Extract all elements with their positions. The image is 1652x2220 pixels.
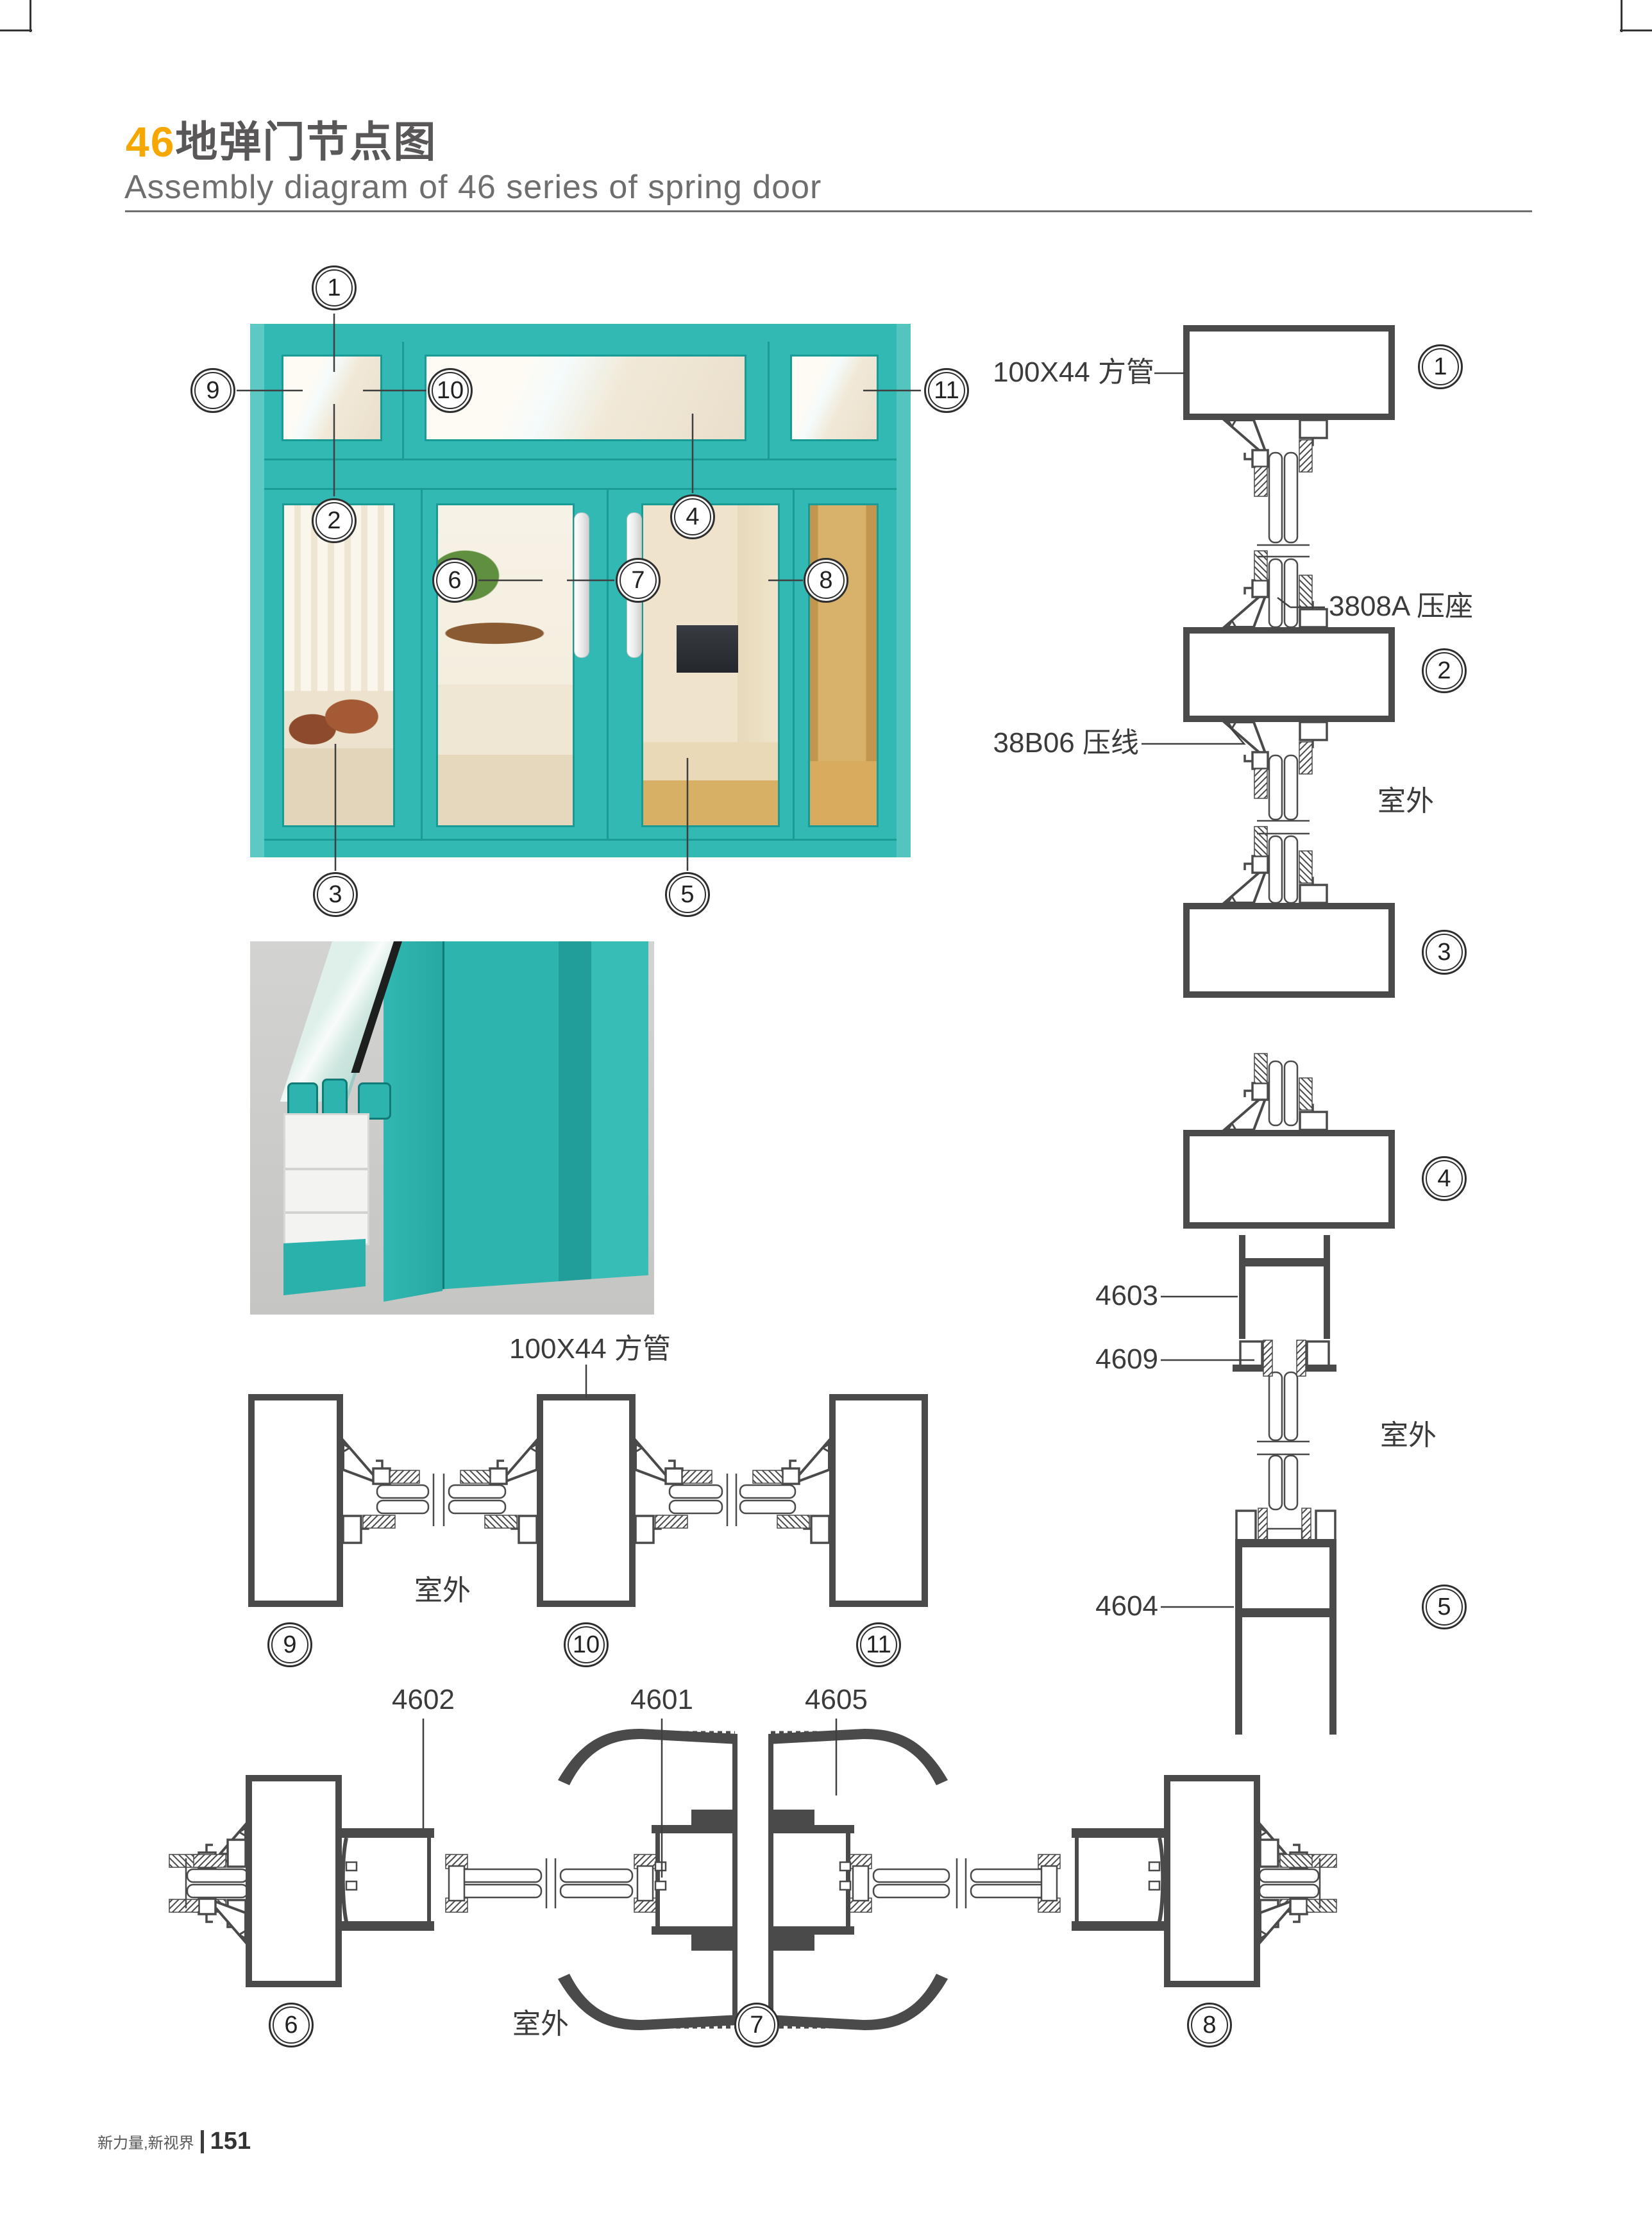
label-tube-bottom: 100X44 方管 xyxy=(509,1333,671,1366)
door-meeting-seam xyxy=(607,489,609,841)
label-4601: 4601 xyxy=(630,1684,693,1717)
label-3808a: 3808A 压座 xyxy=(1329,591,1473,623)
label-4605: 4605 xyxy=(805,1684,868,1717)
render-profile-shelf-2 xyxy=(285,1211,367,1214)
glass-units-vertical xyxy=(1269,453,1297,1509)
window-frame-highlight-right xyxy=(897,324,911,857)
callout-section-5: 5 xyxy=(1422,1585,1467,1629)
callout-number: 4 xyxy=(686,503,699,531)
callout-number: 7 xyxy=(631,567,645,594)
door-pane-leaf-left xyxy=(436,503,575,827)
callout-number: 5 xyxy=(680,881,694,909)
callout-section-7: 7 xyxy=(734,2003,779,2048)
label-4609: 4609 xyxy=(1095,1343,1158,1376)
label-4604: 4604 xyxy=(1095,1590,1158,1623)
label-tube-right: 100X44 方管 xyxy=(993,357,1154,389)
callout-number: 8 xyxy=(819,567,832,594)
callout-number: 2 xyxy=(1437,657,1451,685)
callout-section-1: 1 xyxy=(1418,344,1463,389)
profile-4609 xyxy=(1233,1340,1336,1376)
page-title: 46地弹门节点图 xyxy=(126,108,437,169)
callout-section-10: 10 xyxy=(564,1622,609,1667)
page-subtitle: Assembly diagram of 46 series of spring … xyxy=(124,168,822,206)
callout-number: 3 xyxy=(328,881,342,909)
callout-number: 11 xyxy=(934,377,959,405)
callout-section-3: 3 xyxy=(1422,930,1467,975)
callout-number: 1 xyxy=(327,274,341,302)
transom-mullion-seam-left xyxy=(402,342,404,458)
footer-brand: 新力量,新视界 xyxy=(97,2130,194,2153)
transom-mullion-seam-right xyxy=(768,342,770,458)
label-outdoor-bottom: 室外 xyxy=(512,2008,569,2041)
callout-number: 6 xyxy=(448,567,461,594)
door-pane-sidelite-left xyxy=(282,503,395,827)
callout-window-11: 11 xyxy=(924,368,969,413)
crop-mark-top-right-h xyxy=(1620,29,1652,31)
transom-pane-right xyxy=(790,355,879,441)
label-outdoor-right-upper: 室外 xyxy=(1378,786,1434,818)
callout-window-1: 1 xyxy=(312,265,357,310)
callout-section-6: 6 xyxy=(269,2003,314,2048)
profile-4602-right-mirror xyxy=(1072,1828,1165,1931)
page-footer: 新力量,新视界 151 xyxy=(97,2128,251,2155)
render-glass-pane xyxy=(280,941,400,1102)
bottom-rail-seam xyxy=(264,839,897,841)
callout-number: 11 xyxy=(866,1631,891,1659)
door-pane-sidelite-right xyxy=(808,503,879,827)
profile-4604 xyxy=(1235,1508,1336,1735)
profile-4603 xyxy=(1239,1235,1330,1339)
callout-number: 3 xyxy=(1437,939,1451,966)
page-title-chinese: 地弹门节点图 xyxy=(175,118,437,165)
catalog-page: 46地弹门节点图 Assembly diagram of 46 series o… xyxy=(0,0,1652,2220)
callout-section-4: 4 xyxy=(1422,1156,1467,1201)
profile-3d-render xyxy=(250,941,654,1315)
label-outdoor-right-lower: 室外 xyxy=(1380,1420,1437,1452)
crop-mark-top-left-v xyxy=(29,0,31,32)
callout-number: 4 xyxy=(1437,1165,1451,1193)
crop-mark-top-right-v xyxy=(1621,0,1622,32)
render-profile-box xyxy=(283,1113,369,1245)
callout-window-6: 6 xyxy=(432,558,477,603)
callout-window-9: 9 xyxy=(190,368,235,413)
callout-section-11: 11 xyxy=(856,1622,901,1667)
label-outdoor-mid: 室外 xyxy=(414,1575,471,1608)
glass-units-plan xyxy=(377,1485,795,1513)
door-mullion-seam-right xyxy=(793,489,795,841)
render-frame-slab xyxy=(383,941,442,1302)
glass-units-bottom xyxy=(187,1869,1319,1897)
callout-number: 7 xyxy=(750,2012,763,2039)
label-38b06: 38B06 压线 xyxy=(993,727,1139,760)
header-divider xyxy=(125,210,1532,212)
callout-section-9: 9 xyxy=(267,1622,312,1667)
footer-divider xyxy=(201,2130,204,2153)
profile-4601-leaf xyxy=(558,1729,737,2030)
label-4602: 4602 xyxy=(392,1684,455,1717)
door-mullion-seam-left xyxy=(421,489,423,841)
window-frame-highlight-left xyxy=(250,324,264,857)
callout-section-8: 8 xyxy=(1187,2003,1232,2048)
callout-number: 6 xyxy=(284,2012,298,2039)
callout-window-2: 2 xyxy=(312,498,357,543)
transom-pane-left xyxy=(282,355,382,441)
callout-window-5: 5 xyxy=(665,872,710,917)
callout-window-4: 4 xyxy=(670,494,715,539)
profile-4602-left xyxy=(341,1828,434,1931)
render-door-panel xyxy=(442,941,648,1293)
callout-number: 9 xyxy=(283,1631,296,1659)
callout-window-3: 3 xyxy=(313,872,358,917)
label-4603: 4603 xyxy=(1095,1280,1158,1313)
callout-number: 9 xyxy=(206,377,219,405)
callout-number: 5 xyxy=(1437,1594,1451,1621)
transom-rail-seam xyxy=(264,458,897,460)
render-profile-shelf-1 xyxy=(285,1168,367,1170)
door-rail-seam xyxy=(264,488,897,490)
door-handle-left xyxy=(575,513,589,657)
callout-number: 10 xyxy=(573,1631,600,1659)
callout-number: 10 xyxy=(437,377,464,405)
callout-window-10: 10 xyxy=(428,368,473,413)
profile-4605-leaf xyxy=(768,1729,948,2030)
callout-number: 2 xyxy=(327,507,341,535)
callout-window-8: 8 xyxy=(804,558,848,603)
callout-window-7: 7 xyxy=(616,558,661,603)
crop-mark-top-left-h xyxy=(0,29,32,31)
render-profile-skirt xyxy=(283,1239,366,1295)
callout-number: 8 xyxy=(1202,2012,1216,2039)
callout-number: 1 xyxy=(1433,353,1447,381)
footer-page-number: 151 xyxy=(210,2128,251,2155)
door-pane-leaf-right xyxy=(641,503,780,827)
transom-pane-middle xyxy=(425,355,746,441)
callout-section-2: 2 xyxy=(1422,648,1467,693)
page-title-number: 46 xyxy=(126,118,175,165)
